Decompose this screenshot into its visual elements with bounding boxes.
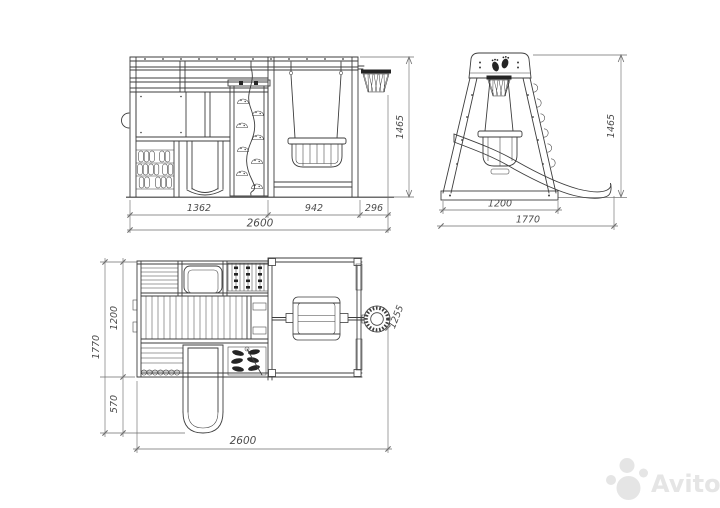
avito-wordmark: Avito	[651, 470, 720, 498]
technical-drawing-sheet: 1362 942 296 2600 1465	[0, 0, 720, 508]
front-climbing-wall	[228, 61, 270, 196]
plan-basketball-hoop	[362, 306, 390, 332]
dim-plan-depth-total: 1770	[91, 335, 102, 359]
dim-front-total-width: 2600	[247, 218, 274, 230]
dim-plan-total-width: 2600	[230, 435, 257, 447]
dim-plan-depth-main: 1200	[109, 306, 120, 330]
dim-front-tower-width: 1362	[187, 203, 211, 214]
plan-climb-wall-top	[228, 263, 268, 291]
plan-view: 1200 1770 570 2600 1255	[91, 258, 406, 453]
side-slide	[454, 134, 611, 198]
side-basketball-net	[487, 76, 512, 97]
plan-slide	[183, 345, 223, 433]
baby-swing-seat	[288, 138, 346, 167]
dim-front-hoop-width: 296	[365, 203, 383, 214]
front-top-beam	[130, 57, 358, 92]
front-play-panel	[122, 92, 230, 141]
side-base-beam	[441, 191, 627, 200]
plan-abacus	[141, 348, 183, 375]
side-dimensions: 1200 1770 1465	[437, 55, 627, 230]
side-elevation-view: 1200 1770 1465	[437, 53, 627, 230]
drawing-svg: 1362 942 296 2600 1465	[0, 0, 720, 508]
plan-climb-holds	[228, 347, 266, 375]
dim-front-swing-width: 942	[305, 203, 323, 214]
side-footprints-logo	[491, 56, 510, 72]
front-swing-bay	[274, 62, 352, 187]
side-cap-bolts	[479, 62, 519, 69]
side-swing	[478, 80, 522, 174]
front-small-slide	[187, 141, 223, 195]
plan-deck-planks	[146, 296, 242, 339]
front-basketball-hoop	[358, 66, 391, 92]
plan-swing-bay	[268, 258, 364, 380]
front-abacus-counter	[136, 141, 179, 197]
avito-logo-icon	[606, 458, 648, 500]
side-climbing-holds	[534, 84, 556, 167]
plan-table-top	[184, 266, 222, 293]
dim-side-base-width: 1200	[488, 199, 512, 210]
dim-plan-depth-slide: 570	[109, 395, 120, 413]
dim-side-height: 1465	[606, 114, 617, 138]
dim-side-total-depth: 1770	[516, 215, 540, 226]
avito-watermark: Avito	[606, 458, 720, 500]
side-a-frame	[443, 53, 556, 193]
dim-front-height: 1465	[395, 115, 406, 139]
front-elevation-view: 1362 942 296 2600 1465	[122, 57, 415, 233]
dim-plan-beam-offset: 1255	[387, 304, 406, 331]
plan-swing-seat	[293, 297, 340, 340]
climbing-rope	[247, 61, 255, 195]
